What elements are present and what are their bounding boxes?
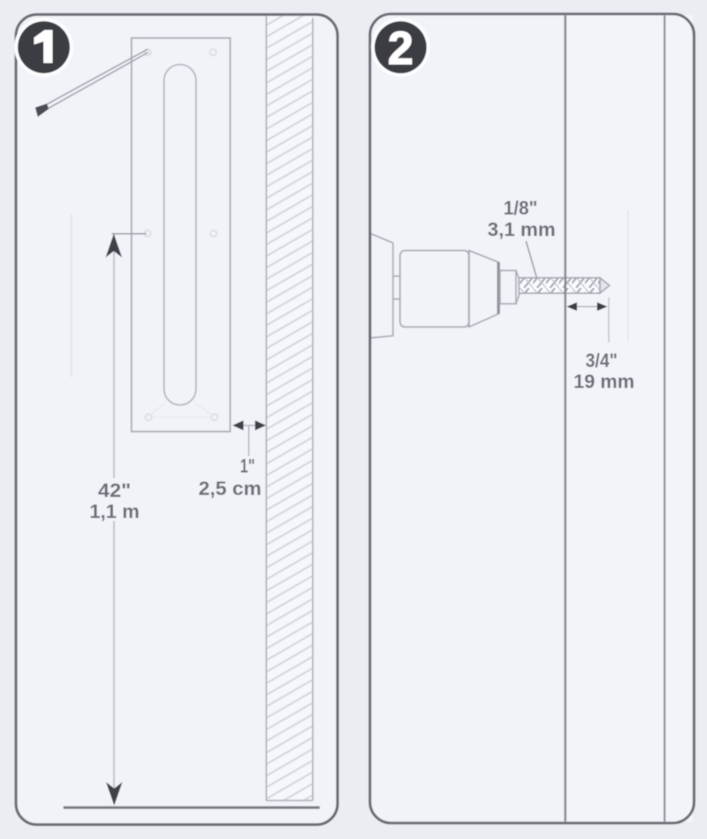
svg-text:19 mm: 19 mm [574,371,635,393]
svg-text:2: 2 [388,22,414,74]
svg-text:1": 1" [240,457,255,478]
svg-text:42": 42" [98,481,131,502]
svg-text:1,1 m: 1,1 m [90,502,140,523]
svg-text:1/8": 1/8" [504,199,538,220]
svg-text:3,1 mm: 3,1 mm [488,220,556,241]
svg-text:3/4": 3/4" [586,350,618,372]
svg-text:2,5 cm: 2,5 cm [199,479,262,500]
